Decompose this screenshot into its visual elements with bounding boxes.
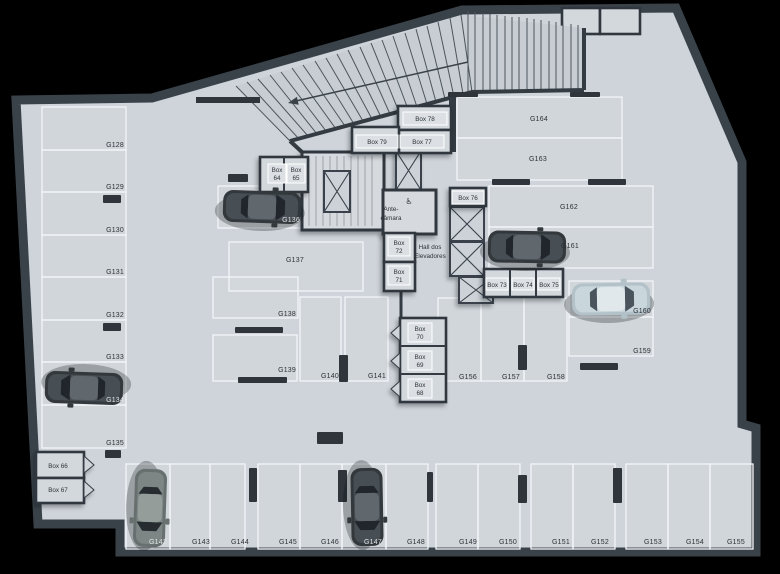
garage-floor-plan: G128 G129 G130 G131 G132 G133 G134 G135 …: [0, 0, 780, 574]
pillar: [427, 472, 433, 502]
elevator-hall-label-line1: Hall dos: [419, 244, 442, 251]
spot-label-g135: G135: [106, 440, 124, 447]
car-g160: [564, 278, 655, 324]
pillar: [249, 468, 257, 502]
box-label-76: Box 76: [458, 195, 478, 202]
parking-spot-g152[interactable]: [573, 464, 615, 549]
parking-spot-g151[interactable]: [531, 464, 573, 549]
box-label-73: Box 73: [487, 282, 507, 289]
spot-label-g129: G129: [106, 184, 124, 191]
wheel-stop: [235, 327, 283, 333]
spot-label-g134: G134: [106, 397, 124, 404]
parking-spot-g139[interactable]: [213, 335, 297, 381]
box-label-70-line1: Box: [415, 326, 427, 333]
parking-spot-g155[interactable]: [710, 464, 753, 549]
bottom-parking-row: [126, 464, 753, 549]
spot-label-g154: G154: [686, 539, 704, 546]
parking-spot-g146[interactable]: [300, 464, 342, 549]
box-label-72-line2: 72: [395, 248, 403, 255]
spot-label-g161: G161: [561, 243, 579, 250]
parking-spot-g141[interactable]: [345, 297, 388, 381]
elevator-shaft: [396, 151, 421, 190]
spot-label-g137: G137: [286, 257, 304, 264]
pillar: [317, 432, 343, 444]
wheel-stop: [588, 179, 626, 185]
spot-label-g140: G140: [321, 373, 339, 380]
accessibility-icon: ♿: [405, 197, 412, 206]
spot-label-g150: G150: [499, 539, 517, 546]
spot-label-g153: G153: [644, 539, 662, 546]
spot-label-g149: G149: [459, 539, 477, 546]
car-g161: [480, 226, 571, 272]
box-label-64-line2: 64: [273, 175, 281, 182]
box-label-65-line2: 65: [292, 175, 300, 182]
spot-label-g152: G152: [591, 539, 609, 546]
parking-spot-g150[interactable]: [478, 464, 520, 549]
wheel-stop: [105, 450, 121, 458]
spot-label-g156: G156: [459, 374, 477, 381]
wheel-stop: [103, 195, 121, 203]
pillar: [339, 355, 348, 382]
box-label-71-line2: 71: [395, 277, 403, 284]
box-label-70-line2: 70: [416, 334, 424, 341]
pillar: [518, 475, 527, 503]
ramp-slab: [461, 15, 584, 92]
box-label-69-line1: Box: [415, 354, 427, 361]
parking-spot-g149[interactable]: [436, 464, 478, 549]
parking-spot-g158[interactable]: [524, 298, 567, 381]
elevator-shaft: [450, 207, 484, 241]
wheel-stop: [238, 377, 287, 383]
spot-label-g128: G128: [106, 142, 124, 149]
spot-label-g146: G146: [321, 539, 339, 546]
box-label-67: Box 67: [48, 487, 68, 494]
wheel-stop: [492, 179, 530, 185]
wheel-stop: [570, 92, 600, 97]
ante-chamber-label-line2: câmara: [381, 215, 402, 222]
wheel-stop: [228, 174, 248, 182]
spot-label-g132: G132: [106, 312, 124, 319]
elevator-hall-label-line2: Elevadores: [414, 253, 446, 260]
spot-label-g139: G139: [278, 367, 296, 374]
parking-spot-g145[interactable]: [258, 464, 300, 549]
box-label-66: Box 66: [48, 463, 68, 470]
spot-label-g148: G148: [407, 539, 425, 546]
wheel-stop: [103, 323, 121, 331]
pillar: [518, 345, 527, 370]
spot-label-g143: G143: [192, 539, 210, 546]
spot-label-g136: G136: [282, 217, 300, 224]
spot-label-g157: G157: [502, 374, 520, 381]
spot-label-g133: G133: [106, 354, 124, 361]
parking-spot-g154[interactable]: [668, 464, 710, 549]
box-label-68-line1: Box: [415, 382, 427, 389]
spot-label-g160: G160: [633, 308, 651, 315]
box-label-64-line1: Box: [272, 167, 284, 174]
spot-label-g151: G151: [552, 539, 570, 546]
box-label-77: Box 77: [412, 139, 432, 146]
spot-label-g131: G131: [106, 269, 124, 276]
box-label-69-line2: 69: [416, 362, 424, 369]
spot-label-g147: G147: [364, 539, 382, 546]
parking-spot-g143[interactable]: [170, 464, 210, 549]
spot-label-g142: G142: [149, 539, 167, 546]
spot-label-g164: G164: [530, 116, 548, 123]
parking-spot-g140[interactable]: [300, 297, 341, 381]
spot-label-g130: G130: [106, 227, 124, 234]
spot-label-g159: G159: [633, 348, 651, 355]
wheel-stop: [580, 363, 618, 370]
parking-spot-g157[interactable]: [481, 298, 524, 381]
box-label-78: Box 78: [415, 116, 435, 123]
elevator-shaft: [324, 171, 350, 212]
pillar: [613, 468, 622, 503]
utility-room: [600, 8, 640, 34]
box-label-79: Box 79: [367, 139, 387, 146]
box-label-75: Box 75: [539, 282, 559, 289]
spot-label-g163: G163: [529, 156, 547, 163]
spot-label-g162: G162: [560, 204, 578, 211]
box-label-68-line2: 68: [416, 390, 424, 397]
box-label-71-line1: Box: [394, 269, 406, 276]
spot-label-g158: G158: [547, 374, 565, 381]
elevator-shaft: [450, 242, 484, 276]
parking-spot-g153[interactable]: [626, 464, 668, 549]
spot-label-g155: G155: [727, 539, 745, 546]
spot-label-g145: G145: [279, 539, 297, 546]
ante-chamber-label-line1: Ante-: [383, 206, 398, 213]
car-g147: [342, 460, 388, 551]
spot-label-g138: G138: [278, 311, 296, 318]
spot-label-g144: G144: [231, 539, 249, 546]
parking-spot-g144[interactable]: [210, 464, 245, 549]
box-label-65-line1: Box: [291, 167, 303, 174]
parking-spot-g148[interactable]: [386, 464, 428, 549]
floor-plan-canvas: G128 G129 G130 G131 G132 G133 G134 G135 …: [0, 0, 780, 574]
box-label-74: Box 74: [513, 282, 533, 289]
spot-label-g141: G141: [368, 373, 386, 380]
wall-segment: [196, 97, 260, 103]
wheel-stop: [448, 92, 478, 97]
box-label-72-line1: Box: [394, 240, 406, 247]
